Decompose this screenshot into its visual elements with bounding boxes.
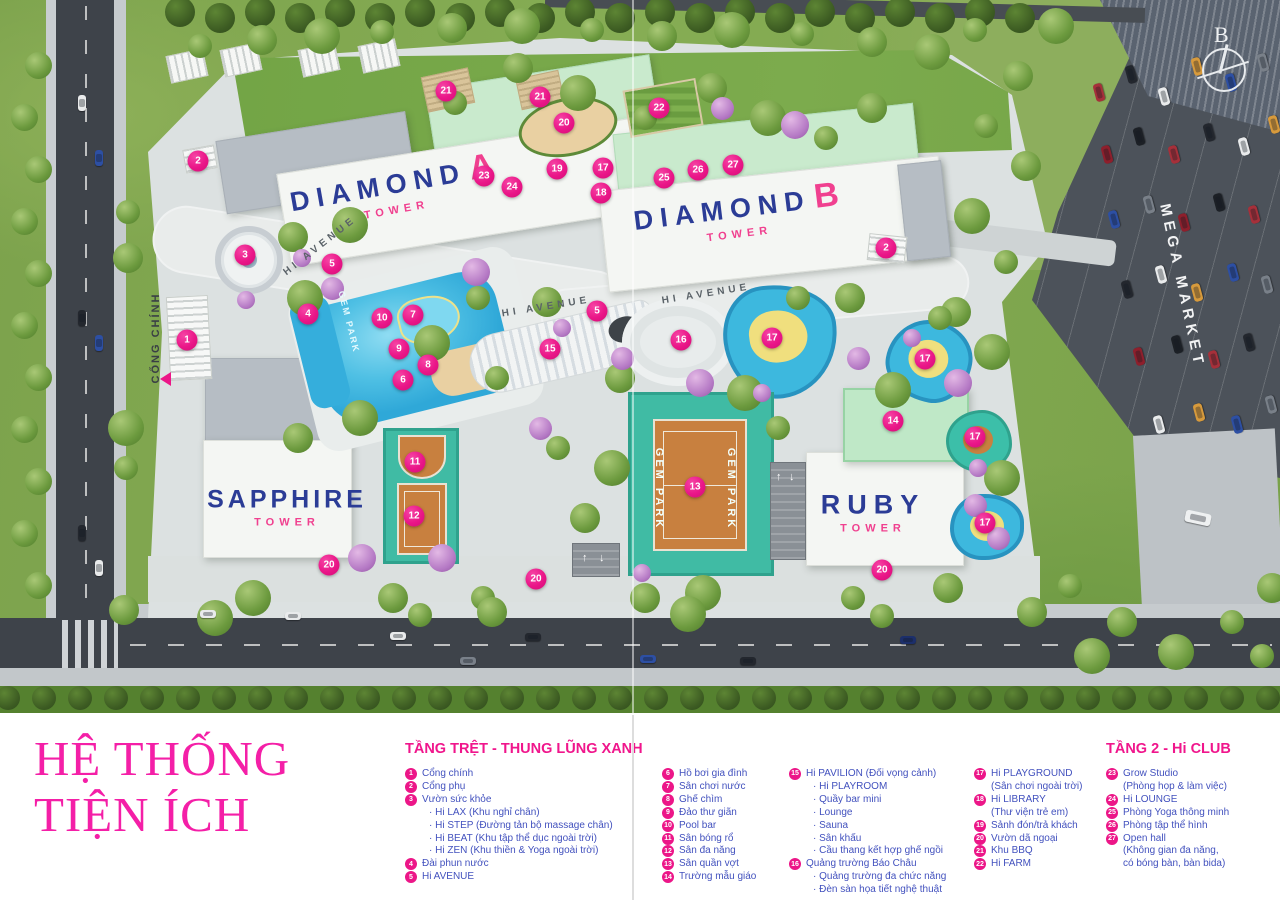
legend-item-22: 22Hi FARM bbox=[974, 858, 1082, 869]
map-marker-21[interactable]: 21 bbox=[530, 87, 551, 108]
legend-item-2: 2Cổng phụ bbox=[405, 781, 643, 792]
legend-item-number-badge: 18 bbox=[974, 794, 986, 806]
legend-item-label: Đảo thư giãn bbox=[679, 807, 737, 818]
map-marker-24[interactable]: 24 bbox=[502, 177, 523, 198]
page-title-line1: HỆ THỐNG bbox=[34, 731, 290, 787]
legend-item-label: Vườn dã ngoại bbox=[991, 833, 1058, 844]
legend-item-6: 6Hồ bơi gia đình bbox=[662, 768, 756, 779]
legend-sub-item: · Hi BEAT (Khu tập thể dục ngoài trời) bbox=[405, 833, 643, 844]
legend-item-18: 18Hi LIBRARY bbox=[974, 794, 1082, 805]
legend-item-number-badge: 13 bbox=[662, 858, 674, 870]
legend-item-4: 4Đài phun nước bbox=[405, 858, 643, 869]
map-markers-layer: 1223455678910111213141516171717171718192… bbox=[0, 0, 1280, 715]
page-title: HỆ THỐNG TIỆN ÍCH bbox=[34, 731, 290, 843]
legend-item-27: 27Open hall bbox=[1106, 833, 1231, 844]
legend-item-9: 9Đảo thư giãn bbox=[662, 807, 756, 818]
legend-item-label: Hi PLAYGROUND bbox=[991, 768, 1073, 779]
legend-item-5: 5Hi AVENUE bbox=[405, 871, 643, 882]
legend-item-label: Vườn sức khỏe bbox=[422, 794, 491, 805]
map-marker-17[interactable]: 17 bbox=[915, 349, 936, 370]
map-marker-7[interactable]: 7 bbox=[403, 305, 424, 326]
map-marker-14[interactable]: 14 bbox=[883, 411, 904, 432]
legend-item-label: Grow Studio bbox=[1123, 768, 1178, 779]
legend-sub-item: · Đèn sàn họa tiết nghệ thuật bbox=[789, 884, 946, 895]
map-marker-10[interactable]: 10 bbox=[372, 308, 393, 329]
page-title-line2: TIỆN ÍCH bbox=[34, 787, 290, 843]
legend-sub-item: · Hi LAX (Khu nghỉ chân) bbox=[405, 807, 643, 818]
map-marker-23[interactable]: 23 bbox=[474, 166, 495, 187]
map-marker-3[interactable]: 3 bbox=[235, 245, 256, 266]
legend-item-number-badge: 7 bbox=[662, 781, 674, 793]
legend-item-number-badge: 15 bbox=[789, 768, 801, 780]
legend-item-number-badge: 19 bbox=[974, 820, 986, 832]
legend-item-label: Pool bar bbox=[679, 820, 716, 831]
legend-item-number-badge: 21 bbox=[974, 845, 986, 857]
legend-item-label: Sân chơi nước bbox=[679, 781, 746, 792]
legend-item-note: (Phòng họp & làm việc) bbox=[1106, 781, 1231, 792]
legend-item-16: 16Quảng trường Báo Châu bbox=[789, 858, 946, 869]
legend-item-25: 25Phòng Yoga thông minh bbox=[1106, 807, 1231, 818]
legend-item-label: Ghế chìm bbox=[679, 794, 722, 805]
map-marker-8[interactable]: 8 bbox=[418, 355, 439, 376]
legend-item-number-badge: 23 bbox=[1106, 768, 1118, 780]
legend-column-3: 15Hi PAVILION (Đối vọng cảnh)· Hi PLAYRO… bbox=[789, 741, 946, 897]
legend-item-10: 10Pool bar bbox=[662, 820, 756, 831]
map-marker-17[interactable]: 17 bbox=[762, 328, 783, 349]
legend-column-2: 6Hồ bơi gia đình7Sân chơi nước8Ghế chìm9… bbox=[662, 741, 756, 884]
legend-item-label: Phòng Yoga thông minh bbox=[1123, 807, 1229, 818]
site-plan-page: ↑ ↓ ↑ ↓ DIAMONDATOWERDIAMONDBTOWERSAPPHI… bbox=[0, 0, 1280, 900]
legend-sub-item: · Lounge bbox=[789, 807, 946, 818]
legend-sub-item: · Quảng trường đa chức năng bbox=[789, 871, 946, 882]
legend-item-14: 14Trường mẫu giáo bbox=[662, 871, 756, 882]
legend-item-3: 3Vườn sức khỏe bbox=[405, 794, 643, 805]
map-marker-20[interactable]: 20 bbox=[872, 560, 893, 581]
legend-item-number-badge: 11 bbox=[662, 833, 674, 845]
legend-column-1: TẦNG TRỆT - THUNG LŨNG XANH1Cổng chính2C… bbox=[405, 741, 643, 884]
map-marker-19[interactable]: 19 bbox=[547, 159, 568, 180]
legend-panel: HỆ THỐNG TIỆN ÍCH TẦNG TRỆT - THUNG LŨNG… bbox=[0, 713, 1280, 900]
map-marker-22[interactable]: 22 bbox=[649, 98, 670, 119]
map-marker-2[interactable]: 2 bbox=[876, 238, 897, 259]
legend-item-13: 13Sân quần vợt bbox=[662, 858, 756, 869]
legend-sub-item: · Sauna bbox=[789, 820, 946, 831]
legend-item-19: 19Sảnh đón/trả khách bbox=[974, 820, 1082, 831]
map-marker-26[interactable]: 26 bbox=[688, 160, 709, 181]
map-marker-25[interactable]: 25 bbox=[654, 168, 675, 189]
legend-item-label: Trường mẫu giáo bbox=[679, 871, 756, 882]
map-marker-5[interactable]: 5 bbox=[587, 301, 608, 322]
legend-item-23: 23Grow Studio bbox=[1106, 768, 1231, 779]
masterplan-map: ↑ ↓ ↑ ↓ DIAMONDATOWERDIAMONDBTOWERSAPPHI… bbox=[0, 0, 1280, 715]
legend-item-label: Hi FARM bbox=[991, 858, 1031, 869]
legend-item-label: Open hall bbox=[1123, 833, 1166, 844]
legend-column-4: 17Hi PLAYGROUND(Sân chơi ngoài trời)18Hi… bbox=[974, 741, 1082, 871]
map-marker-15[interactable]: 15 bbox=[540, 339, 561, 360]
legend-sub-item: · Hi STEP (Đường tản bộ massage chân) bbox=[405, 820, 643, 831]
legend-item-number-badge: 14 bbox=[662, 871, 674, 883]
legend-item-number-badge: 26 bbox=[1106, 820, 1118, 832]
legend-item-label: Sân quần vợt bbox=[679, 858, 739, 869]
legend-item-number-badge: 12 bbox=[662, 845, 674, 857]
legend-item-number-badge: 25 bbox=[1106, 807, 1118, 819]
legend-item-24: 24Hi LOUNGE bbox=[1106, 794, 1231, 805]
legend-item-12: 12Sân đa năng bbox=[662, 845, 756, 856]
map-marker-21[interactable]: 21 bbox=[436, 81, 457, 102]
legend-item-number-badge: 24 bbox=[1106, 794, 1118, 806]
legend-item-number-badge: 4 bbox=[405, 858, 417, 870]
legend-item-1: 1Cổng chính bbox=[405, 768, 643, 779]
map-marker-13[interactable]: 13 bbox=[685, 477, 706, 498]
legend-item-note: (Sân chơi ngoài trời) bbox=[974, 781, 1082, 792]
legend-item-label: Hi PAVILION (Đối vọng cảnh) bbox=[806, 768, 936, 779]
legend-item-15: 15Hi PAVILION (Đối vọng cảnh) bbox=[789, 768, 946, 779]
legend-item-number-badge: 27 bbox=[1106, 833, 1118, 845]
legend-item-label: Hi AVENUE bbox=[422, 871, 474, 882]
legend-item-label: Cổng phụ bbox=[422, 781, 465, 792]
legend-item-7: 7Sân chơi nước bbox=[662, 781, 756, 792]
legend-item-label: Sân bóng rổ bbox=[679, 833, 734, 844]
map-marker-12[interactable]: 12 bbox=[404, 506, 425, 527]
legend-section-header: TẦNG 2 - Hi CLUB bbox=[1106, 741, 1231, 760]
legend-item-number-badge: 16 bbox=[789, 858, 801, 870]
legend-item-label: Khu BBQ bbox=[991, 845, 1033, 856]
map-marker-2[interactable]: 2 bbox=[188, 151, 209, 172]
legend-item-20: 20Vườn dã ngoại bbox=[974, 833, 1082, 844]
legend-item-note: (Không gian đa năng, bbox=[1106, 845, 1231, 856]
legend-item-label: Sân đa năng bbox=[679, 845, 736, 856]
legend-item-21: 21Khu BBQ bbox=[974, 845, 1082, 856]
map-marker-11[interactable]: 11 bbox=[405, 452, 426, 473]
legend-sub-item: · Quầy bar mini bbox=[789, 794, 946, 805]
map-marker-18[interactable]: 18 bbox=[591, 183, 612, 204]
legend-sub-item: · Cầu thang kết hợp ghế ngồi bbox=[789, 845, 946, 856]
legend-item-number-badge: 3 bbox=[405, 794, 417, 806]
legend-item-number-badge: 17 bbox=[974, 768, 986, 780]
map-marker-17[interactable]: 17 bbox=[593, 158, 614, 179]
legend-sub-item: · Sân khấu bbox=[789, 833, 946, 844]
map-marker-20[interactable]: 20 bbox=[319, 555, 340, 576]
legend-item-number-badge: 9 bbox=[662, 807, 674, 819]
legend-item-label: Hồ bơi gia đình bbox=[679, 768, 747, 779]
legend-item-label: Hi LIBRARY bbox=[991, 794, 1046, 805]
legend-item-note: (Thư viện trẻ em) bbox=[974, 807, 1082, 818]
legend-item-label: Hi LOUNGE bbox=[1123, 794, 1177, 805]
legend-item-11: 11Sân bóng rổ bbox=[662, 833, 756, 844]
legend-item-number-badge: 22 bbox=[974, 858, 986, 870]
map-marker-5[interactable]: 5 bbox=[322, 254, 343, 275]
legend-sub-item: · Hi PLAYROOM bbox=[789, 781, 946, 792]
legend-sub-item: · Hi ZEN (Khu thiền & Yoga ngoài trời) bbox=[405, 845, 643, 856]
legend-item-17: 17Hi PLAYGROUND bbox=[974, 768, 1082, 779]
legend-item-number-badge: 5 bbox=[405, 871, 417, 883]
legend-item-8: 8Ghế chìm bbox=[662, 794, 756, 805]
legend-item-number-badge: 20 bbox=[974, 833, 986, 845]
legend-item-number-badge: 6 bbox=[662, 768, 674, 780]
legend-section-header: TẦNG TRỆT - THUNG LŨNG XANH bbox=[405, 741, 643, 760]
page-fold-line bbox=[632, 0, 634, 900]
legend-item-note: có bóng bàn, bàn bida) bbox=[1106, 858, 1231, 869]
legend-item-label: Phòng tập thể hình bbox=[1123, 820, 1208, 831]
legend-item-label: Cổng chính bbox=[422, 768, 473, 779]
legend-item-number-badge: 1 bbox=[405, 768, 417, 780]
legend-item-number-badge: 8 bbox=[662, 794, 674, 806]
compass-circle-icon bbox=[1202, 48, 1246, 92]
legend-item-label: Đài phun nước bbox=[422, 858, 489, 869]
map-marker-16[interactable]: 16 bbox=[671, 330, 692, 351]
map-marker-20[interactable]: 20 bbox=[526, 569, 547, 590]
legend-item-label: Sảnh đón/trả khách bbox=[991, 820, 1078, 831]
legend-column-5: TẦNG 2 - Hi CLUB23Grow Studio(Phòng họp … bbox=[1106, 741, 1231, 871]
map-marker-1[interactable]: 1 bbox=[177, 330, 198, 351]
map-marker-17[interactable]: 17 bbox=[965, 427, 986, 448]
map-marker-17[interactable]: 17 bbox=[975, 513, 996, 534]
map-marker-9[interactable]: 9 bbox=[389, 339, 410, 360]
legend-item-26: 26Phòng tập thể hình bbox=[1106, 820, 1231, 831]
map-marker-4[interactable]: 4 bbox=[298, 304, 319, 325]
map-marker-27[interactable]: 27 bbox=[723, 155, 744, 176]
legend-item-number-badge: 2 bbox=[405, 781, 417, 793]
map-marker-6[interactable]: 6 bbox=[393, 370, 414, 391]
legend-item-number-badge: 10 bbox=[662, 820, 674, 832]
compass-logo: B bbox=[1196, 22, 1258, 100]
map-marker-20[interactable]: 20 bbox=[554, 113, 575, 134]
legend-item-label: Quảng trường Báo Châu bbox=[806, 858, 917, 869]
